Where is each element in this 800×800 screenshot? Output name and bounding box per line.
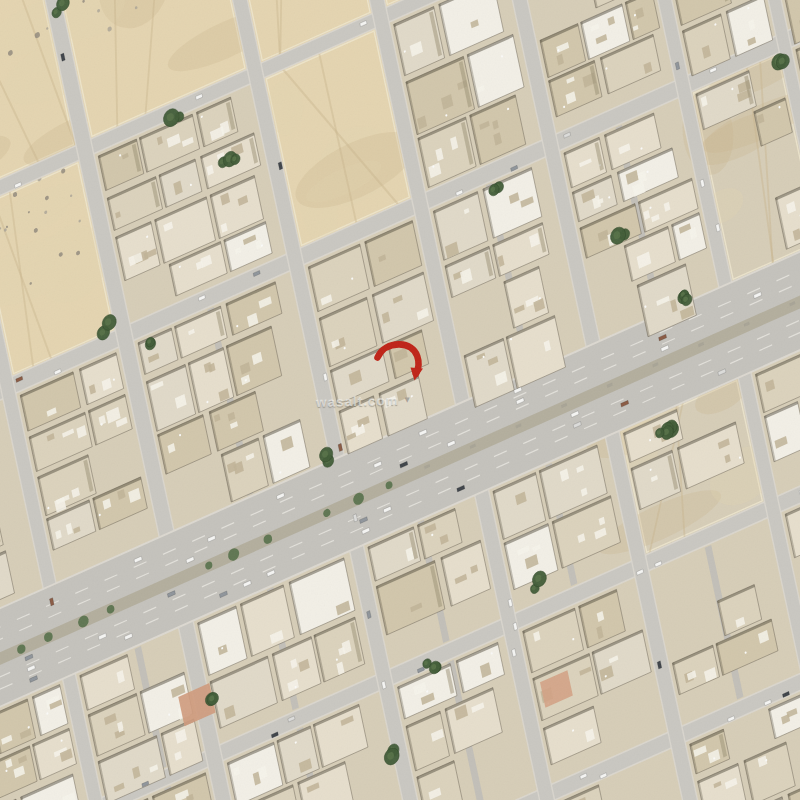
satellite-map	[0, 0, 800, 800]
film-grain-overlay	[0, 0, 800, 800]
map-screenshot: wasalt.com ▼	[0, 0, 800, 800]
